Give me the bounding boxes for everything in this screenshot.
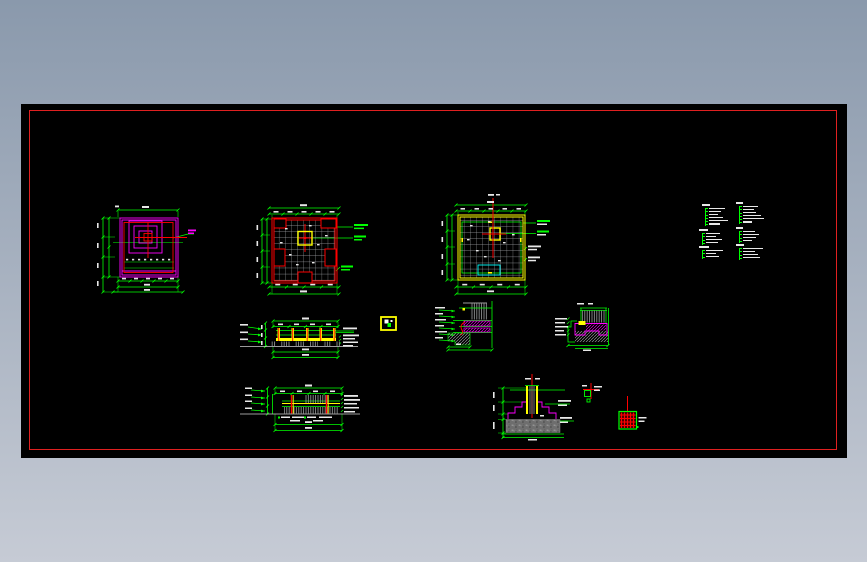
foundation-plan-1 [95, 195, 215, 300]
section-long-upper [240, 315, 370, 365]
rebar-mesh-detail [615, 395, 649, 437]
footing-edge-detail [555, 295, 617, 352]
anchor-detail [580, 382, 606, 406]
foundation-plan-3 [440, 190, 556, 302]
column-legend-symbol [380, 316, 398, 332]
foundation-plan-2 [255, 195, 370, 300]
cad-canvas[interactable] [21, 104, 847, 458]
column-footing-detail [490, 374, 578, 444]
section-long-lower [245, 383, 377, 439]
wall-base-detail [435, 300, 503, 352]
